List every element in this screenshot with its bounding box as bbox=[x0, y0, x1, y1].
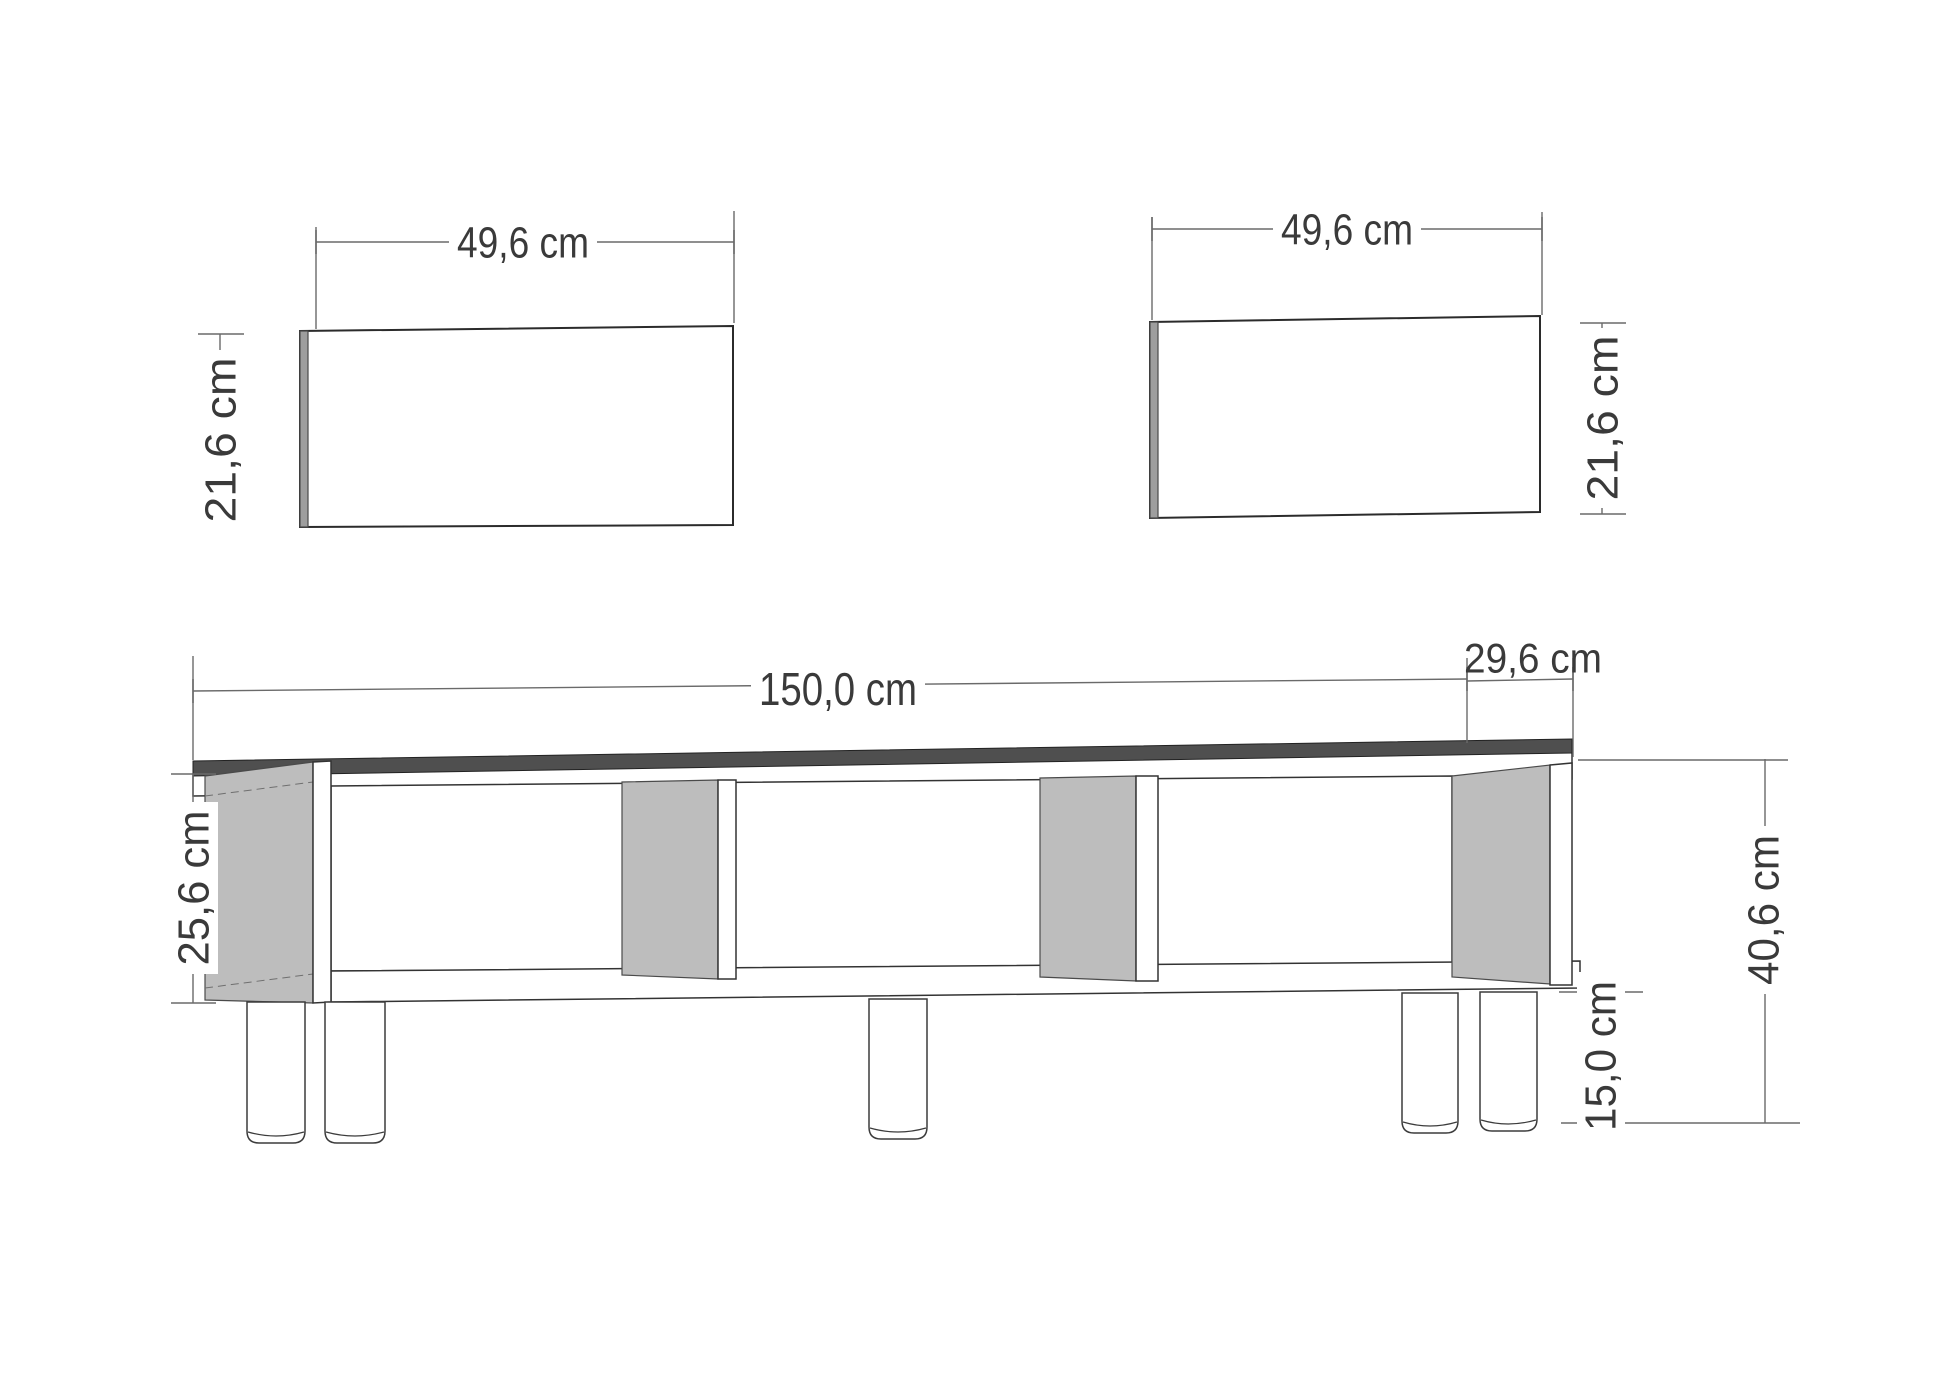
leg-right-back bbox=[1480, 992, 1537, 1131]
body-height-dimension: 25,6 cm bbox=[170, 774, 219, 1003]
right-side-panel-front-edge bbox=[1550, 763, 1572, 985]
leg-left-front bbox=[247, 1002, 305, 1143]
leg-left-back bbox=[325, 1002, 385, 1143]
legs bbox=[247, 992, 1537, 1143]
right-side-panel bbox=[1452, 765, 1550, 984]
panel-face bbox=[1150, 316, 1540, 518]
top-left-panel-view: 49,6 cm 21,6 cm bbox=[197, 211, 735, 530]
width-dimension-label: 49,6 cm bbox=[457, 219, 589, 268]
divider-2 bbox=[1040, 776, 1136, 981]
left-side-panel bbox=[205, 762, 313, 1003]
leg-height-label: 15,0 cm bbox=[1577, 981, 1626, 1131]
divider-1-front-edge bbox=[718, 780, 736, 979]
divider-2-front-edge bbox=[1136, 776, 1158, 981]
leg-middle bbox=[869, 999, 927, 1139]
panel-face bbox=[300, 326, 733, 527]
cabinet-width-label: 150,0 cm bbox=[759, 663, 917, 715]
leg-right-front bbox=[1402, 993, 1458, 1133]
total-height-label: 40,6 cm bbox=[1740, 835, 1789, 985]
panel-edge-strip bbox=[300, 331, 308, 527]
height-dimension: 21,6 cm bbox=[197, 334, 246, 530]
drawing-canvas: 49,6 cm 21,6 cm 49,6 cm bbox=[0, 0, 1946, 1376]
top-right-panel-view: 49,6 cm 21,6 cm bbox=[1150, 206, 1628, 519]
technical-drawing-page: 49,6 cm 21,6 cm 49,6 cm bbox=[0, 0, 1946, 1376]
height-dimension: 21,6 cm bbox=[1579, 323, 1628, 514]
width-dimension: 49,6 cm bbox=[316, 211, 734, 329]
cabinet-depth-label: 29,6 cm bbox=[1464, 635, 1602, 682]
body-height-label: 25,6 cm bbox=[170, 811, 219, 966]
panel-edge-strip bbox=[1150, 322, 1158, 518]
height-dimension-label: 21,6 cm bbox=[1579, 336, 1628, 501]
divider-1 bbox=[622, 780, 718, 979]
leg-height-dimension: 15,0 cm bbox=[1559, 972, 1643, 1140]
height-dimension-label: 21,6 cm bbox=[197, 358, 246, 523]
cabinet-depth-dimension: 29,6 cm bbox=[1464, 635, 1602, 758]
tv-stand-front-view: 150,0 cm 29,6 cm 25,6 cm bbox=[170, 635, 1801, 1144]
width-dimension-label: 49,6 cm bbox=[1281, 206, 1413, 255]
width-dimension: 49,6 cm bbox=[1152, 206, 1542, 321]
cabinet-interior bbox=[331, 776, 1452, 971]
left-side-panel-front-edge bbox=[313, 761, 331, 1003]
